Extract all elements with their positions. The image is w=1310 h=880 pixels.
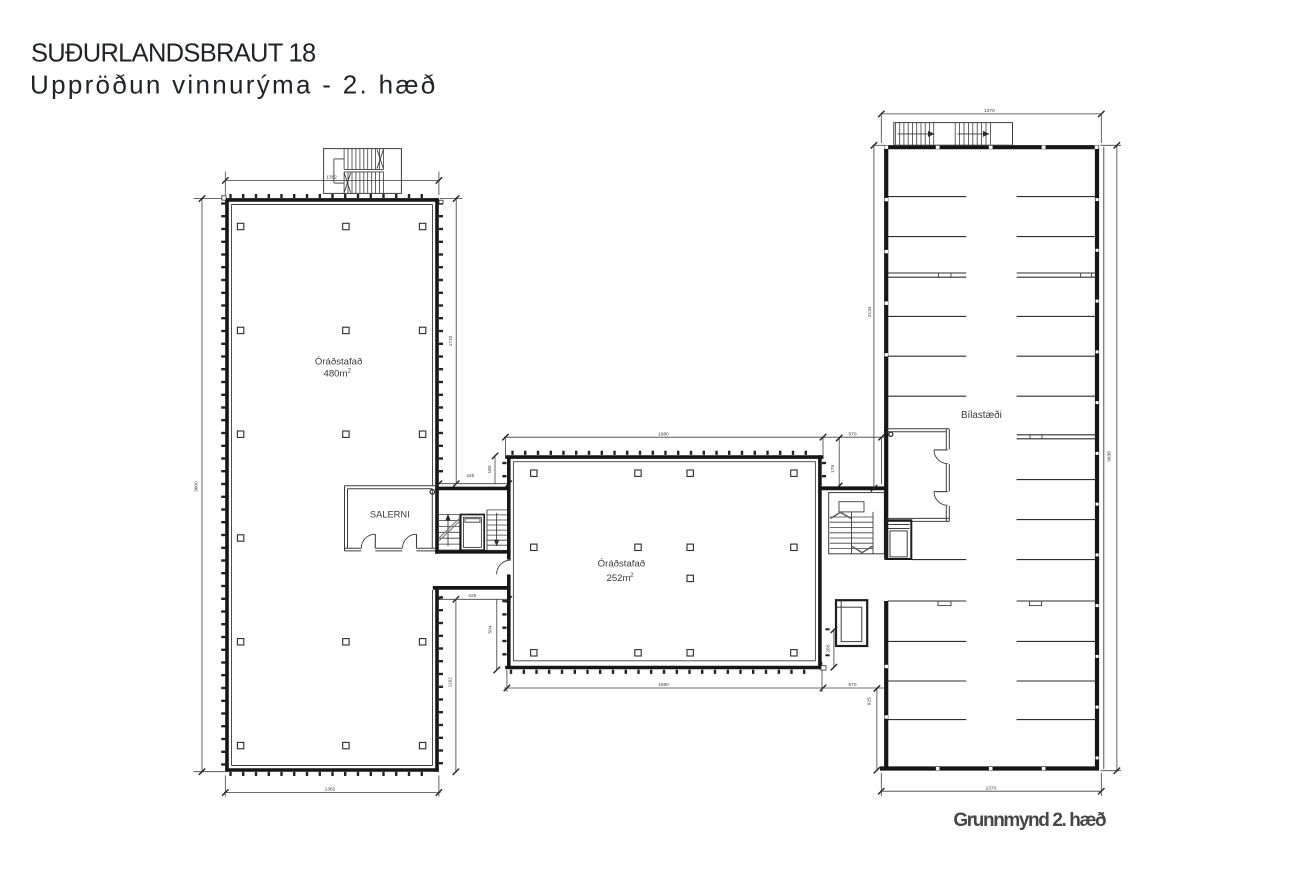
- svg-text:3638: 3638: [1107, 451, 1113, 462]
- svg-text:265: 265: [826, 644, 832, 652]
- svg-text:425: 425: [468, 593, 476, 599]
- svg-text:1382: 1382: [326, 175, 337, 181]
- svg-text:252m: 252m: [607, 573, 631, 584]
- svg-text:480m: 480m: [324, 369, 348, 380]
- svg-text:Grunnmynd 2. hæð: Grunnmynd 2. hæð: [953, 810, 1106, 831]
- svg-text:175: 175: [830, 465, 836, 473]
- svg-text:1370: 1370: [984, 108, 995, 114]
- svg-text:Bílastæði: Bílastæði: [961, 410, 1002, 421]
- svg-text:180: 180: [487, 465, 493, 473]
- svg-text:SALERNI: SALERNI: [370, 510, 410, 520]
- svg-text:1710: 1710: [448, 335, 454, 346]
- svg-text:1162: 1162: [448, 677, 454, 688]
- svg-text:SUÐURLANDSBRAUT 18: SUÐURLANDSBRAUT 18: [31, 40, 316, 68]
- svg-text:2: 2: [348, 367, 352, 374]
- svg-text:425: 425: [466, 473, 474, 479]
- svg-text:1880: 1880: [658, 431, 669, 437]
- svg-text:570: 570: [848, 431, 856, 437]
- svg-text:Uppröðun vinnurýma - 2. hæð: Uppröðun vinnurýma - 2. hæð: [30, 70, 438, 100]
- svg-text:1370: 1370: [986, 785, 997, 791]
- svg-text:Óráðstafað: Óráðstafað: [315, 357, 362, 368]
- svg-text:Óráðstafað: Óráðstafað: [598, 558, 645, 569]
- svg-text:1880: 1880: [658, 682, 669, 688]
- svg-text:2134: 2134: [867, 306, 873, 317]
- svg-text:925: 925: [867, 697, 873, 705]
- svg-text:504: 504: [487, 625, 493, 633]
- svg-text:2: 2: [630, 572, 634, 579]
- svg-text:3600: 3600: [194, 481, 200, 492]
- svg-text:1382: 1382: [325, 787, 336, 793]
- svg-text:570: 570: [848, 682, 856, 688]
